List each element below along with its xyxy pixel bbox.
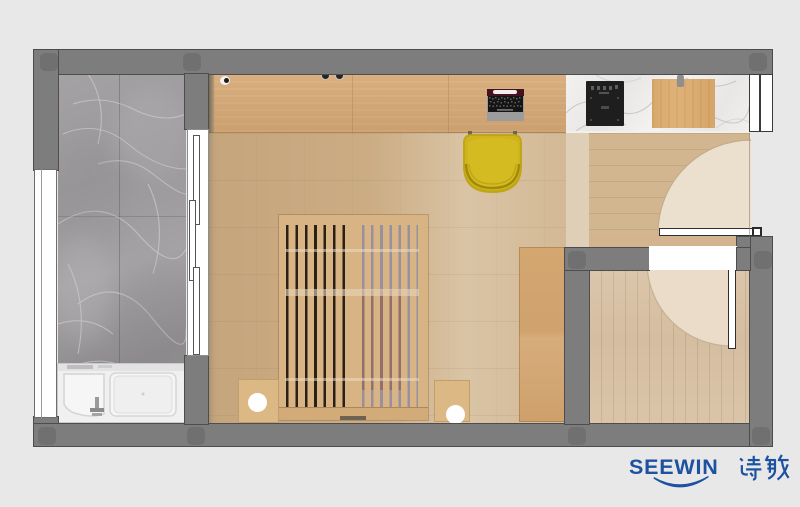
svg-text:SEEWIN: SEEWIN — [629, 455, 719, 479]
